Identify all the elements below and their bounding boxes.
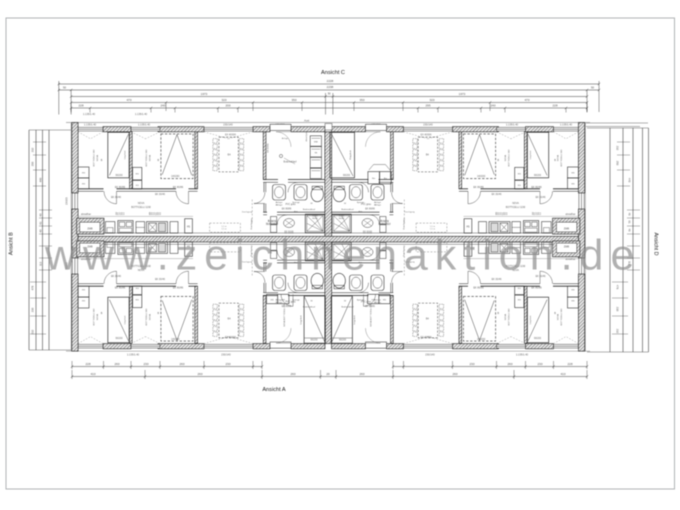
svg-text:476: 476: [30, 285, 34, 290]
svg-text:BOTTICELLI 990: BOTTICELLI 990: [94, 308, 96, 326]
svg-text:KG: KG: [518, 185, 521, 187]
svg-text:1,5 m: 1,5 m: [221, 228, 226, 230]
svg-text:abstellbar: abstellbar: [81, 213, 91, 216]
svg-text:Bm: Bm: [384, 178, 387, 180]
svg-text:EK 80/86: EK 80/86: [282, 209, 292, 211]
svg-text:Ansicht D: Ansicht D: [653, 232, 659, 255]
svg-text:Klappbett: Klappbett: [349, 150, 352, 160]
svg-text:HG: HG: [571, 290, 575, 292]
svg-text:EX 40/306: EX 40/306: [225, 134, 236, 136]
svg-text:NOVA: NOVA: [504, 154, 507, 161]
svg-text:M: M: [344, 203, 346, 205]
svg-text:2238: 2238: [327, 85, 334, 89]
svg-text:Bodenablauf: Bodenablauf: [341, 209, 354, 211]
svg-text:260: 260: [179, 362, 184, 366]
svg-text:EX 40/306: EX 40/306: [421, 337, 432, 339]
svg-text:Backofen: Backofen: [532, 213, 542, 215]
svg-text:140/200: 140/200: [171, 339, 180, 341]
svg-text:80/80: 80/80: [339, 218, 345, 220]
svg-text:Ansicht A: Ansicht A: [262, 387, 286, 393]
svg-text:350: 350: [291, 98, 296, 102]
svg-text:295: 295: [425, 103, 430, 107]
svg-text:HG: HG: [136, 174, 140, 176]
svg-text:abstellbar: abstellbar: [566, 213, 576, 216]
svg-text:HG: HG: [82, 290, 86, 292]
svg-text:Anlage: Anlage: [276, 299, 284, 302]
svg-text:230: 230: [616, 307, 620, 312]
svg-text:KG: KG: [518, 288, 521, 290]
svg-text:EK 80/86: EK 80/86: [115, 287, 126, 290]
svg-text:BOTTICELLI 990: BOTTICELLI 990: [561, 149, 563, 167]
svg-text:228: 228: [567, 362, 572, 366]
svg-text:Liegebett: Liegebett: [529, 150, 532, 159]
svg-text:Bodenablauf: Bodenablauf: [379, 223, 391, 225]
svg-text:470: 470: [126, 98, 131, 102]
svg-text:Ansicht B: Ansicht B: [9, 232, 15, 255]
svg-text:230/140: 230/140: [425, 353, 435, 357]
svg-text:260: 260: [290, 372, 295, 376]
svg-text:Durchgang: Durchgang: [250, 218, 253, 229]
svg-text:440: 440: [38, 177, 42, 182]
svg-text:Arbeitsplatte: Arbeitsplatte: [495, 212, 508, 215]
svg-text:HG: HG: [82, 183, 86, 185]
svg-text:EK 80/86: EK 80/86: [268, 143, 270, 153]
svg-text:BOTTICELLI 990: BOTTICELLI 990: [509, 149, 511, 167]
svg-text:HG: HG: [571, 183, 575, 185]
svg-text:260: 260: [507, 362, 512, 366]
svg-text:50: 50: [591, 86, 595, 90]
svg-text:240: 240: [490, 103, 495, 107]
svg-text:KG: KG: [136, 185, 139, 187]
svg-text:Anlage: Anlage: [374, 299, 382, 302]
svg-text:228: 228: [78, 103, 83, 107]
svg-text:228: 228: [552, 103, 557, 107]
svg-text:HG: HG: [518, 300, 522, 302]
svg-text:1.135/1.40: 1.135/1.40: [84, 123, 97, 127]
svg-text:Durchgang: Durchgang: [242, 211, 253, 214]
svg-text:HS: HS: [187, 227, 191, 229]
svg-text:Liegebett: Liegebett: [124, 315, 127, 324]
svg-text:50: 50: [63, 86, 67, 90]
svg-text:KG: KG: [136, 288, 139, 290]
svg-text:Ansicht C: Ansicht C: [321, 70, 345, 76]
svg-text:113: 113: [38, 261, 42, 266]
svg-text:230/140: 230/140: [223, 123, 233, 127]
svg-text:1.135/1.40: 1.135/1.40: [506, 123, 519, 127]
svg-text:EK 80/86: EK 80/86: [473, 186, 484, 189]
svg-text:90/200: 90/200: [115, 338, 123, 340]
svg-text:Durchgang: Durchgang: [404, 211, 415, 214]
svg-text:320: 320: [221, 98, 226, 102]
svg-text:BOTTICELLI 990: BOTTICELLI 990: [561, 308, 563, 326]
svg-text:EK 80/86: EK 80/86: [531, 287, 542, 290]
svg-text:Liegebett: Liegebett: [529, 315, 532, 324]
svg-text:HG: HG: [136, 300, 140, 302]
svg-text:EK 80/86: EK 80/86: [365, 209, 375, 211]
svg-text:1973: 1973: [201, 92, 208, 96]
svg-text:EK 80/86: EK 80/86: [365, 306, 375, 308]
svg-text:260: 260: [452, 372, 457, 376]
svg-text:410: 410: [560, 372, 565, 376]
svg-text:BOTTICELLI 990: BOTTICELLI 990: [146, 149, 148, 167]
svg-text:WM: WM: [314, 142, 318, 144]
svg-text:HS: HS: [383, 300, 387, 302]
svg-text:Backofen: Backofen: [115, 213, 125, 215]
svg-text:NOVA: NOVA: [138, 202, 145, 205]
svg-text:240: 240: [160, 103, 165, 107]
svg-text:www.zeichnenaktion.de: www.zeichnenaktion.de: [44, 232, 641, 280]
svg-text:1.135/1.40: 1.135/1.40: [135, 112, 148, 116]
svg-text:230: 230: [143, 362, 148, 366]
svg-text:2228: 2228: [327, 79, 334, 83]
svg-text:Ausl.: Ausl.: [304, 119, 310, 123]
svg-text:476: 476: [616, 285, 620, 290]
svg-text:232: 232: [616, 329, 620, 334]
svg-text:HS: HS: [271, 300, 275, 302]
svg-text:90/200: 90/200: [534, 338, 542, 340]
svg-text:NOVA: NOVA: [149, 313, 152, 320]
svg-text:NOVA: NOVA: [149, 154, 152, 161]
svg-text:PVC grau: PVC grau: [286, 301, 297, 304]
svg-text:50: 50: [328, 92, 331, 96]
svg-text:230/140: 230/140: [221, 353, 231, 357]
svg-text:BOTTICELLI 990: BOTTICELLI 990: [509, 308, 511, 326]
svg-text:90/200: 90/200: [534, 175, 542, 177]
svg-text:410: 410: [90, 372, 95, 376]
svg-text:40: 40: [38, 213, 42, 216]
svg-text:1.135/1.40: 1.135/1.40: [83, 112, 96, 116]
svg-text:Bodenablauf: Bodenablauf: [341, 307, 354, 309]
svg-text:1973: 1973: [459, 92, 466, 96]
svg-text:Bodenablauf: Bodenablauf: [266, 223, 278, 225]
svg-text:250: 250: [616, 161, 620, 166]
svg-text:440: 440: [628, 178, 632, 183]
svg-text:250: 250: [30, 161, 34, 166]
svg-text:190/05: 190/05: [66, 197, 69, 205]
svg-text:260: 260: [197, 372, 202, 376]
svg-text:EX 40/306: EX 40/306: [421, 134, 432, 136]
svg-text:PVC grau: PVC grau: [361, 203, 372, 206]
svg-text:90/200: 90/200: [310, 340, 318, 342]
svg-text:80/80: 80/80: [312, 216, 318, 218]
svg-text:HG: HG: [518, 174, 522, 176]
svg-text:PVC grau: PVC grau: [286, 203, 297, 206]
svg-text:1.135/1.40: 1.135/1.40: [138, 123, 151, 127]
svg-text:1.135/1.40: 1.135/1.40: [560, 123, 573, 127]
svg-text:350: 350: [359, 98, 364, 102]
svg-text:40: 40: [38, 229, 42, 232]
svg-text:EK 80/86: EK 80/86: [531, 186, 542, 189]
svg-text:232: 232: [616, 146, 620, 151]
svg-text:BOTTICELLI 990: BOTTICELLI 990: [146, 308, 148, 326]
svg-text:EX 40/306: EX 40/306: [225, 337, 236, 339]
svg-text:80/80: 80/80: [312, 218, 318, 220]
svg-text:NOVA: NOVA: [96, 154, 99, 161]
svg-text:EK 80/86: EK 80/86: [115, 186, 126, 189]
svg-text:Bodenablauf: Bodenablauf: [303, 307, 316, 309]
svg-text:M: M: [344, 301, 346, 303]
svg-text:BOTTICELLI 1190: BOTTICELLI 1190: [506, 206, 526, 209]
svg-text:TR: TR: [314, 152, 317, 154]
svg-text:200: 200: [225, 103, 230, 107]
svg-text:Ausgang: Ausgang: [268, 219, 277, 222]
svg-text:HG: HG: [82, 173, 86, 175]
svg-text:Durchgang: Durchgang: [403, 218, 406, 229]
svg-text:230: 230: [537, 362, 542, 366]
svg-text:1,5 m: 1,5 m: [430, 228, 435, 230]
svg-text:EK 80/86: EK 80/86: [173, 287, 184, 290]
svg-text:Arbeitsplatte: Arbeitsplatte: [149, 212, 162, 215]
svg-text:PVC grau: PVC grau: [361, 301, 372, 304]
svg-text:470: 470: [524, 98, 529, 102]
svg-text:140/200: 140/200: [477, 339, 486, 341]
svg-text:ZWB: ZWB: [564, 228, 570, 231]
svg-text:61: 61: [38, 221, 42, 224]
svg-text:Liegebett: Liegebett: [124, 150, 127, 159]
svg-text:90/200: 90/200: [339, 340, 347, 342]
svg-text:40: 40: [628, 213, 632, 216]
svg-text:EK 80/86: EK 80/86: [173, 186, 184, 189]
svg-text:M: M: [311, 203, 313, 205]
svg-text:Anlage: Anlage: [374, 201, 382, 204]
svg-text:HG: HG: [571, 301, 575, 303]
svg-text:1.135/1.40: 1.135/1.40: [516, 353, 529, 357]
svg-text:140/200: 140/200: [171, 176, 180, 178]
svg-text:BOTTICELLI 1190: BOTTICELLI 1190: [131, 206, 151, 209]
svg-text:230: 230: [469, 362, 474, 366]
svg-text:Anlage: Anlage: [276, 201, 284, 204]
svg-text:NOVA: NOVA: [556, 313, 559, 320]
svg-text:BOTTICELLI 990: BOTTICELLI 990: [94, 149, 96, 167]
svg-text:140/200: 140/200: [477, 176, 486, 178]
svg-text:ZWB: ZWB: [87, 228, 93, 231]
svg-text:Ausgang: Ausgang: [380, 219, 389, 222]
svg-text:1,5 m: 1,5 m: [221, 226, 226, 228]
svg-text:260: 260: [114, 362, 119, 366]
svg-text:230: 230: [30, 307, 34, 312]
svg-text:M: M: [311, 301, 313, 303]
svg-text:1,5 m: 1,5 m: [430, 226, 435, 228]
svg-text:Liegebett: Liegebett: [300, 315, 303, 324]
svg-text:260: 260: [359, 372, 364, 376]
svg-text:90/200: 90/200: [343, 175, 351, 177]
svg-text:EK 30/46: EK 30/46: [536, 196, 547, 199]
svg-text:HG: HG: [82, 301, 86, 303]
svg-text:EK 80/86: EK 80/86: [282, 306, 292, 308]
svg-text:Bodenablauf: Bodenablauf: [284, 162, 297, 164]
svg-text:Abstellplatz: Abstellplatz: [305, 131, 308, 142]
svg-text:EK 30/46: EK 30/46: [111, 196, 122, 199]
svg-text:EK 30/46: EK 30/46: [155, 193, 166, 196]
svg-text:232: 232: [30, 329, 34, 334]
svg-text:232: 232: [30, 147, 34, 152]
svg-text:NOVA: NOVA: [96, 313, 99, 320]
svg-text:EK 80/86: EK 80/86: [473, 287, 484, 290]
svg-text:80/80: 80/80: [339, 216, 345, 218]
svg-text:1.135/1.40: 1.135/1.40: [127, 353, 140, 357]
svg-text:61: 61: [628, 221, 632, 224]
svg-text:NOVA: NOVA: [512, 202, 519, 205]
svg-text:Bm: Bm: [372, 178, 375, 180]
svg-text:230: 230: [225, 362, 230, 366]
svg-text:NOVA: NOVA: [504, 313, 507, 320]
svg-text:HG: HG: [571, 173, 575, 175]
svg-text:Liegebett: Liegebett: [353, 315, 356, 324]
svg-text:20: 20: [326, 372, 330, 376]
svg-text:Bodenablauf: Bodenablauf: [303, 209, 316, 211]
svg-text:230/140: 230/140: [423, 123, 433, 127]
svg-text:320: 320: [429, 98, 434, 102]
svg-text:EK 30/46: EK 30/46: [492, 193, 503, 196]
svg-text:228: 228: [85, 362, 90, 366]
svg-text:NOVA: NOVA: [556, 154, 559, 161]
svg-text:HS: HS: [466, 227, 470, 229]
svg-text:90/200: 90/200: [115, 175, 123, 177]
